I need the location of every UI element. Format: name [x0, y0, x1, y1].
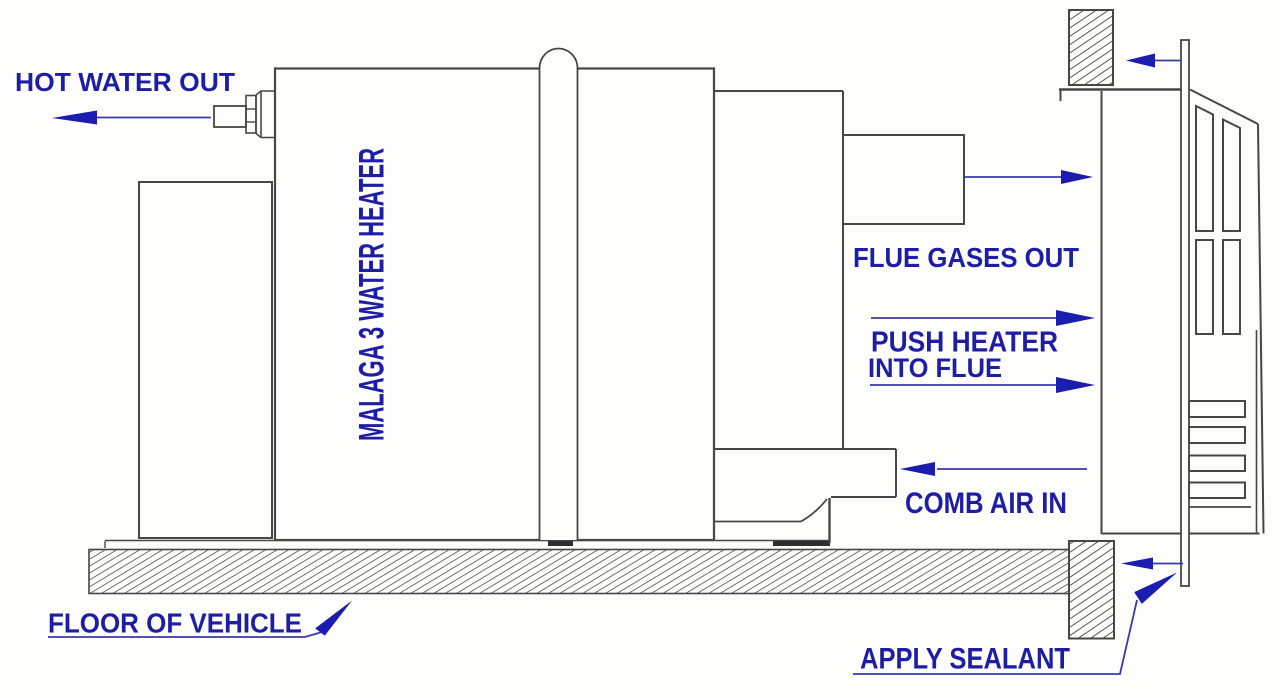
svg-text:HOT WATER OUT: HOT WATER OUT [15, 67, 235, 97]
svg-text:APPLY SEALANT: APPLY SEALANT [860, 643, 1070, 676]
svg-text:FLUE GASES OUT: FLUE GASES OUT [853, 242, 1079, 273]
svg-text:COMB AIR IN: COMB AIR IN [905, 487, 1067, 520]
svg-text:FLOOR OF VEHICLE: FLOOR OF VEHICLE [48, 608, 302, 639]
svg-text:INTO FLUE: INTO FLUE [868, 353, 1002, 383]
svg-text:MALAGA 3 WATER HEATER: MALAGA 3 WATER HEATER [353, 148, 392, 441]
